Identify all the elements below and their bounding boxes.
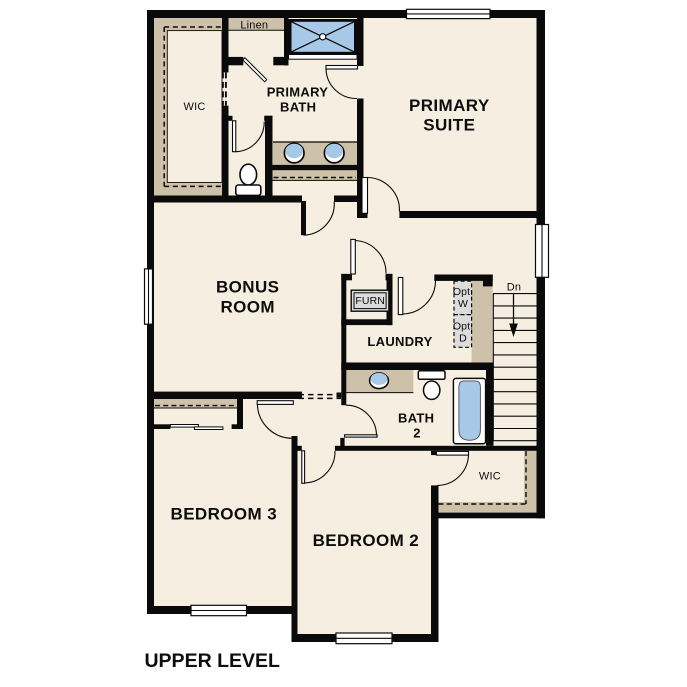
svg-text:BATH: BATH [398, 410, 434, 425]
svg-text:BEDROOM 3: BEDROOM 3 [171, 505, 278, 524]
svg-text:BATH: BATH [280, 99, 316, 114]
svg-text:D: D [459, 333, 467, 345]
svg-text:WIC: WIC [479, 471, 501, 483]
svg-text:PRIMARY: PRIMARY [267, 84, 329, 99]
svg-text:W: W [458, 298, 468, 310]
svg-text:Opt.: Opt. [453, 286, 473, 298]
svg-text:2: 2 [413, 425, 421, 440]
svg-text:ROOM: ROOM [220, 297, 274, 316]
svg-text:BONUS: BONUS [216, 277, 279, 296]
svg-text:PRIMARY: PRIMARY [409, 96, 490, 115]
svg-text:FURN: FURN [355, 295, 385, 307]
svg-text:UPPER LEVEL: UPPER LEVEL [144, 650, 280, 672]
svg-text:WIC: WIC [184, 101, 206, 113]
svg-text:SUITE: SUITE [423, 116, 475, 135]
svg-text:Opt.: Opt. [453, 321, 473, 333]
svg-text:Dn: Dn [507, 282, 521, 294]
svg-text:Linen: Linen [240, 19, 268, 31]
svg-text:BEDROOM 2: BEDROOM 2 [313, 531, 420, 550]
svg-text:LAUNDRY: LAUNDRY [367, 334, 432, 349]
